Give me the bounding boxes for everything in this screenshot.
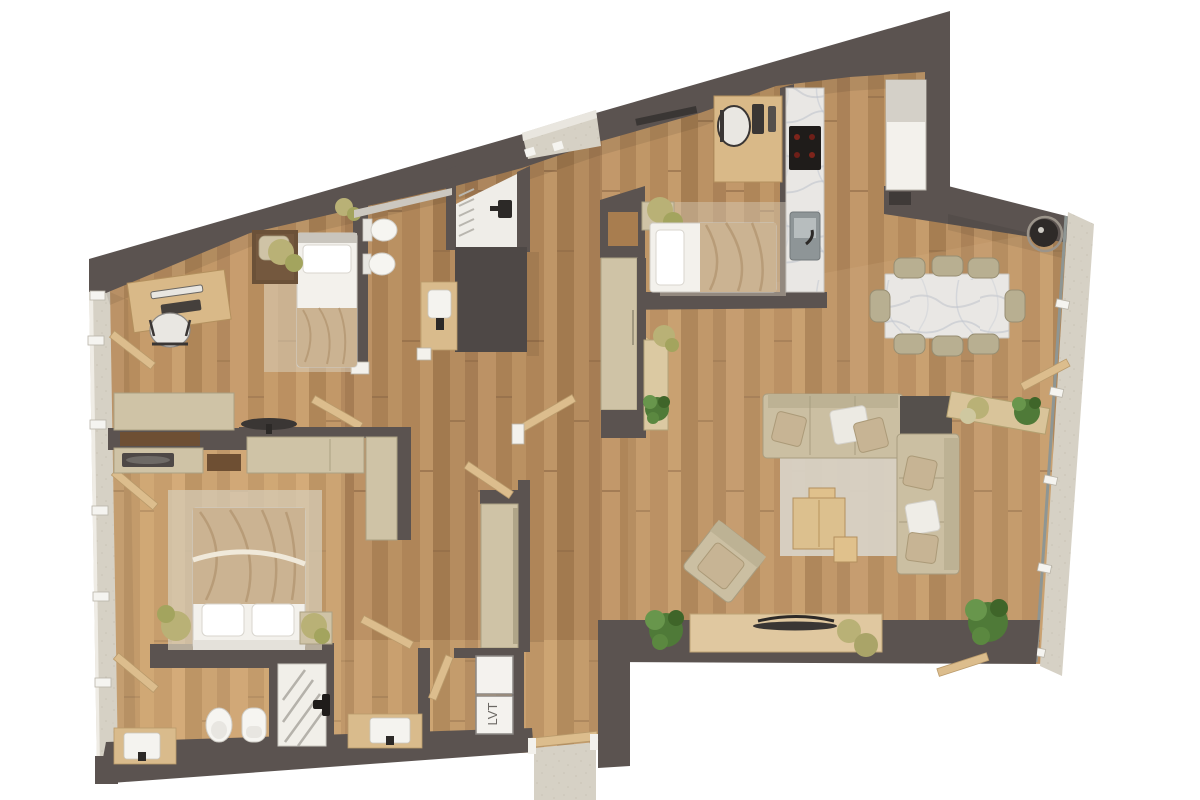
svg-text:LVT: LVT	[485, 703, 500, 726]
